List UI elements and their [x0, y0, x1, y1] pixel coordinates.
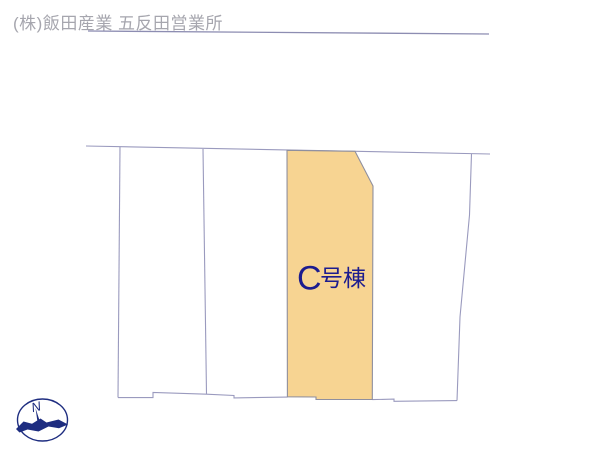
site-plan-canvas: (株)飯田産業 五反田営業所 C 号棟 N — [0, 0, 600, 450]
block-bottom-line-right — [372, 399, 457, 401]
highlighted-lot-label-letter: C — [297, 260, 322, 298]
block-right-line — [457, 154, 472, 401]
highlighted-lot-label-suffix: 号棟 — [320, 265, 366, 291]
compass-icon: N — [16, 398, 68, 441]
road-boundary-line — [88, 31, 489, 34]
site-plan-drawing: C 号棟 N — [0, 0, 600, 450]
compass-bird-shape — [16, 419, 68, 433]
block-bottom-line-left — [118, 392, 288, 398]
lot-divider-left — [118, 147, 120, 398]
lot-divider-middle — [203, 149, 207, 394]
